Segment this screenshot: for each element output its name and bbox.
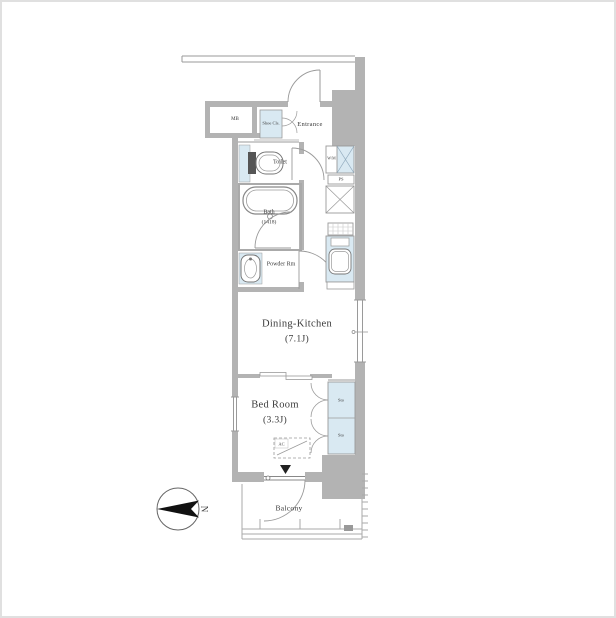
floor-plan: MB Shoe Cls. Entrance Toilet Bath (1418)… (0, 0, 616, 618)
kitchen-counter (327, 282, 354, 289)
north-label: N (199, 506, 210, 513)
pipe-space-label: PS (338, 176, 343, 181)
meter-box-label: MB (231, 117, 239, 123)
toilet-label: Toilet (273, 159, 287, 166)
bed-room-label: Bed Room (3.3J) (251, 400, 299, 427)
sliding-partition (260, 373, 312, 380)
balcony-label: Balcony (275, 505, 302, 514)
dining-kitchen-size: (7.1J) (262, 334, 332, 345)
dining-kitchen-label: Dining-Kitchen (7.1J) (262, 319, 332, 346)
dining-kitchen-name: Dining-Kitchen (262, 319, 332, 330)
bed-room-size: (3.3J) (251, 415, 299, 426)
bath-name: Bath (263, 210, 274, 216)
bedroom-closet (311, 380, 355, 454)
storage-upper-label: Sto (338, 397, 344, 402)
bed-room-name: Bed Room (251, 400, 299, 411)
balcony-door-arc (264, 480, 305, 521)
entrance-label: Entrance (297, 121, 323, 129)
corridor-door-arc (292, 148, 324, 180)
washing-machine-label: W/M (327, 157, 335, 162)
shoe-closet-label: Shoe Cls. (261, 120, 281, 125)
kitchen-sink (329, 249, 351, 274)
entrance-door-arc (288, 70, 320, 102)
powder-basin (239, 253, 262, 284)
powder-room-label: Powder Rm (264, 261, 298, 268)
stove-box (328, 223, 353, 235)
floor-plan-drawing (2, 2, 616, 618)
dk-window (352, 300, 368, 362)
storage-lower-label: Sto (338, 432, 344, 437)
ac-label: AC (278, 441, 284, 446)
toilet-tank (248, 152, 256, 174)
north-compass (157, 488, 199, 530)
door-handle (266, 476, 270, 480)
balcony-door (264, 476, 305, 521)
bath-size: (1418) (262, 220, 277, 227)
closet-door-arcs (311, 383, 328, 453)
bedroom-window (231, 397, 239, 431)
balcony-drain (344, 525, 353, 531)
direction-marker (280, 465, 291, 474)
kitchen-equipment-column (326, 146, 354, 289)
bath-label: Bath (1418) (262, 210, 277, 227)
faucet (249, 258, 252, 261)
common-corridor-lines (182, 56, 355, 62)
